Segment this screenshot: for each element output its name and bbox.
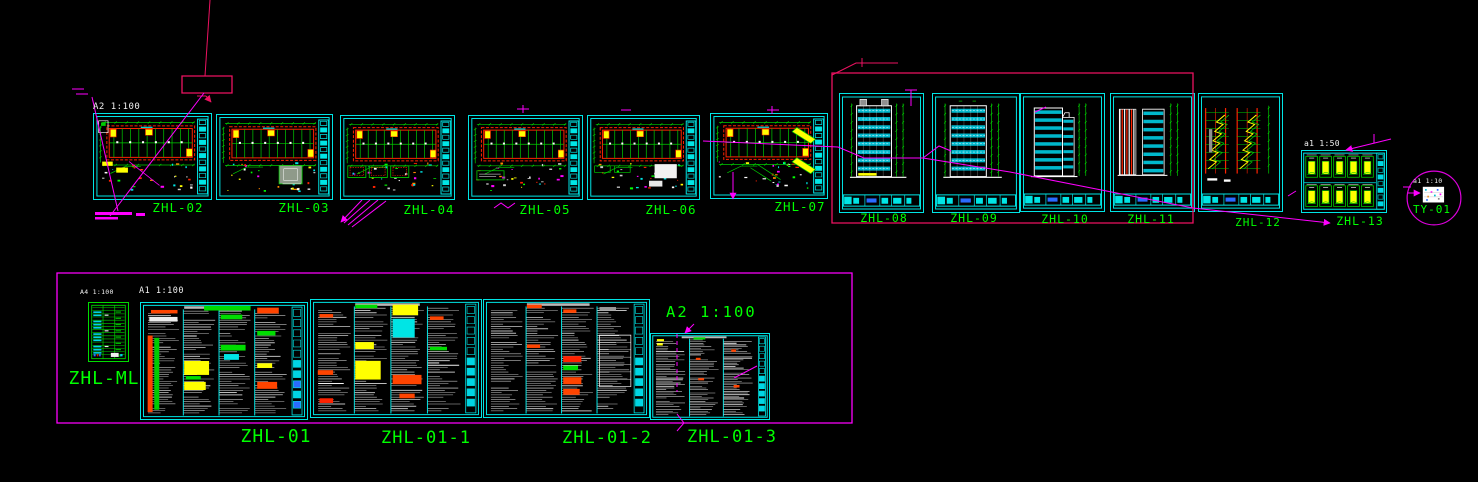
- sheet-title-ZHL-05[interactable]: ZHL-05: [519, 204, 570, 217]
- sheet-title-ZHL-06[interactable]: ZHL-06: [645, 204, 696, 217]
- sheet-title-ZHL-01-3[interactable]: ZHL-01-3: [687, 429, 777, 446]
- sheet-title-ZHL-12[interactable]: ZHL-12: [1235, 217, 1281, 228]
- sheet-drawing-ZHL-01: [141, 303, 307, 419]
- sheet-title-ZHL-01[interactable]: ZHL-01: [240, 428, 311, 446]
- sheet-ZHL-05[interactable]: [468, 115, 583, 200]
- sheet-ZHL-01-3[interactable]: [650, 333, 770, 420]
- sheet-drawing-ZHL-01-1: [311, 300, 481, 417]
- leader-line: [352, 201, 386, 227]
- sheet-ZHL-08[interactable]: [839, 93, 924, 213]
- scale-label[interactable]: a1 1:50: [1304, 140, 1340, 148]
- sheet-drawing-ZHL-01-2: [484, 300, 649, 417]
- scale-label[interactable]: A2 1:100: [93, 103, 140, 112]
- annotation-text-bar: [95, 217, 118, 220]
- sheet-drawing-ZHL-02: [94, 114, 211, 199]
- scale-label[interactable]: A2 1:100: [666, 305, 757, 321]
- sheet-title-ZHL-08[interactable]: ZHL-08: [860, 213, 908, 225]
- sheet-drawing-ZHL-01-3: [651, 334, 769, 419]
- sheet-title-ZHL-03[interactable]: ZHL-03: [278, 202, 329, 215]
- sheet-title-ZHL-02[interactable]: ZHL-02: [152, 202, 203, 215]
- leader-line: [685, 324, 694, 333]
- sheet-drawing-ZHL-13: [1302, 151, 1386, 212]
- sheet-drawing-ZHL-09: [933, 94, 1019, 212]
- scale-label[interactable]: A1 1:100: [139, 287, 184, 296]
- sheet-title-ZHL-07[interactable]: ZHL-07: [774, 201, 825, 214]
- sheet-title-ZHL-01-1[interactable]: ZHL-01-1: [381, 430, 471, 447]
- sheet-title-ZHL-04[interactable]: ZHL-04: [403, 204, 454, 217]
- sheet-ZHL-13[interactable]: [1301, 150, 1387, 213]
- sheet-title-ZHL-11[interactable]: ZHL-11: [1127, 214, 1175, 226]
- leader-line: [494, 203, 515, 208]
- leader-line: [344, 200, 370, 223]
- sheet-title-ZHL-10[interactable]: ZHL-10: [1041, 214, 1089, 226]
- sheet-ZHL-06[interactable]: [587, 115, 700, 200]
- sheet-drawing-ZHL-12: [1199, 94, 1282, 211]
- leader-line: [206, 96, 211, 102]
- leader-line: [205, 0, 210, 76]
- sheet-drawing-ZHL-11: [1111, 94, 1194, 211]
- sheet-ZHL-07[interactable]: [710, 113, 828, 199]
- sheet-drawing-ZHL-08: [840, 94, 923, 212]
- sheet-ZHL-04[interactable]: [340, 115, 455, 200]
- sheet-drawing-ZHL-07: [711, 114, 827, 198]
- sheet-drawing-ZHL-10: [1021, 94, 1104, 211]
- sheet-title-ZHL-09[interactable]: ZHL-09: [950, 213, 998, 225]
- leader-line: [832, 63, 898, 75]
- sheet-ZHL-01-1[interactable]: [310, 299, 482, 418]
- leader-line: [1346, 139, 1391, 150]
- sheet-ZHL-01[interactable]: [140, 302, 308, 420]
- sheet-ZHL-12[interactable]: [1198, 93, 1283, 212]
- sheet-drawing-ZHL-04: [341, 116, 454, 199]
- sheet-title-ZHL-13[interactable]: ZHL-13: [1336, 216, 1384, 228]
- sheet-title-ZHL-01-2[interactable]: ZHL-01-2: [562, 430, 652, 447]
- revision-callout-box: [182, 76, 232, 93]
- scale-label[interactable]: a1 1:10: [1413, 178, 1443, 185]
- sheet-drawing-ZHL-03: [217, 115, 332, 199]
- sheet-drawing-ZHL-06: [588, 116, 699, 199]
- annotation-text-bar: [95, 212, 132, 215]
- sheet-ZHL-01-2[interactable]: [483, 299, 650, 418]
- sheet-ZHL-03[interactable]: [216, 114, 333, 200]
- leader-line: [1288, 191, 1296, 196]
- sheet-title-ZHL-ML[interactable]: ZHL-ML: [68, 370, 139, 388]
- sheet-ZHL-ML[interactable]: [88, 302, 129, 362]
- annotation-text-bar: [136, 213, 145, 216]
- sheet-ZHL-10[interactable]: [1020, 93, 1105, 212]
- sheet-drawing-ZHL-ML: [89, 303, 128, 361]
- leader-line: [348, 200, 378, 225]
- sheet-drawing-ZHL-05: [469, 116, 582, 199]
- sheet-ZHL-11[interactable]: [1110, 93, 1195, 212]
- sheet-title-TY-01[interactable]: TY-01: [1413, 204, 1451, 215]
- sheet-ZHL-02[interactable]: [93, 113, 212, 200]
- leader-line: [341, 200, 362, 222]
- scale-label[interactable]: A4 1:100: [80, 289, 114, 296]
- sheet-ZHL-09[interactable]: [932, 93, 1020, 213]
- cad-canvas[interactable]: ZHL-02ZHL-03ZHL-04ZHL-05ZHL-06ZHL-07ZHL-…: [0, 0, 1478, 482]
